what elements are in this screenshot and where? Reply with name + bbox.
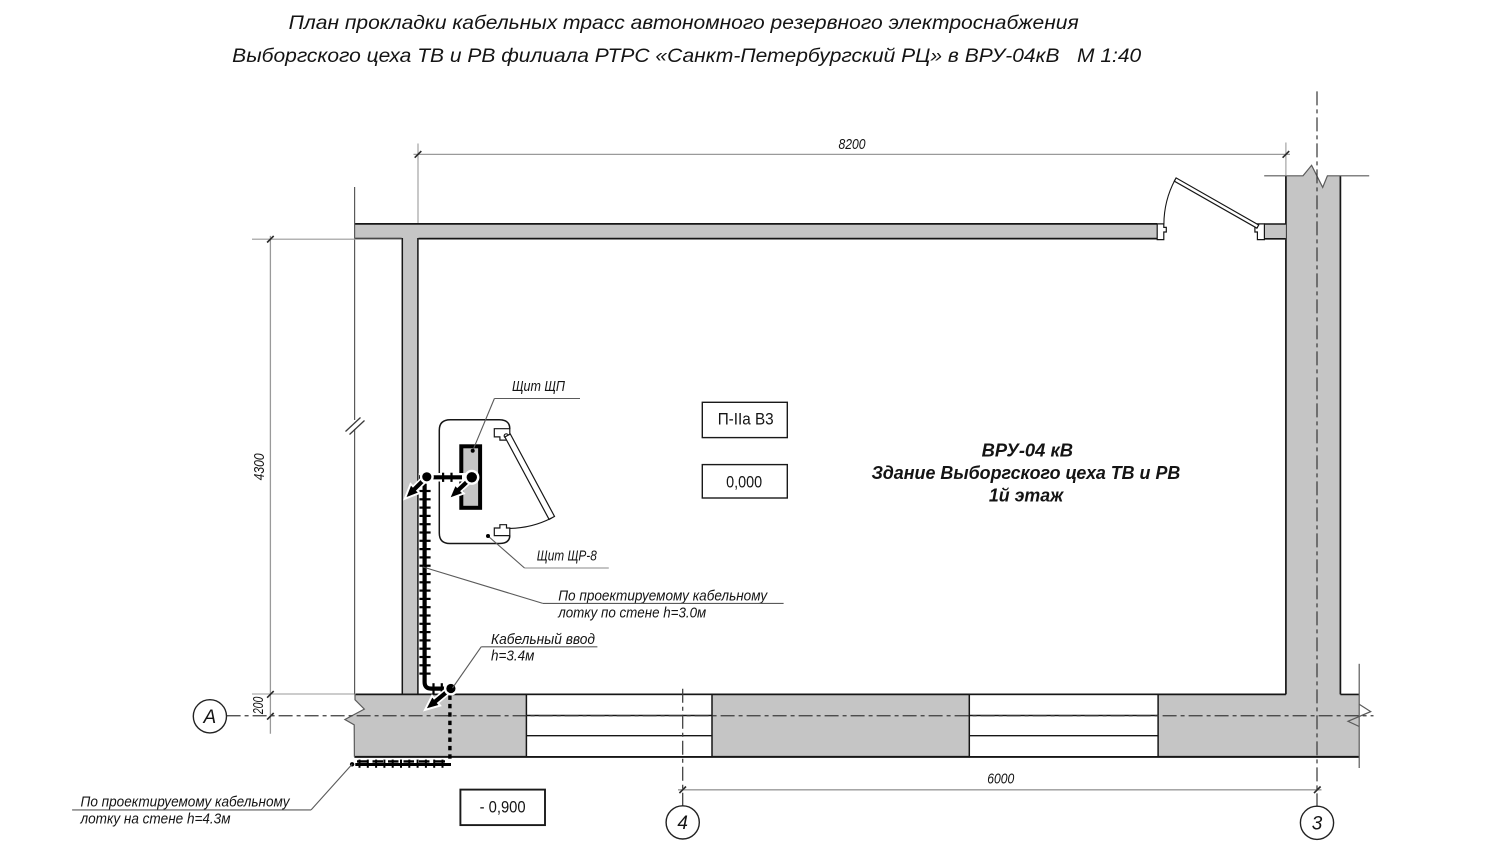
svg-text:3: 3 [1312,814,1323,835]
svg-text:Выборгского цеха ТВ и РВ филиа: Выборгского цеха ТВ и РВ филиала РТРС «С… [232,45,1141,67]
svg-text:П-IIа В3: П-IIа В3 [718,410,774,429]
svg-text:4: 4 [677,813,688,834]
svg-text:1й этаж: 1й этаж [989,484,1065,505]
svg-text:ВРУ-04 кВ: ВРУ-04 кВ [982,439,1073,460]
svg-text:0,000: 0,000 [726,473,762,492]
svg-text:Щит ЩР-8: Щит ЩР-8 [537,548,598,565]
svg-text:4300: 4300 [251,453,268,481]
svg-text:200: 200 [250,696,267,715]
svg-text:- 0,900: - 0,900 [480,798,526,817]
svg-text:По проектируемому кабельному: По проектируемому кабельному [81,794,291,811]
svg-text:6000: 6000 [987,771,1015,788]
svg-text:План прокладки кабельных трасс: План прокладки кабельных трасс автономно… [289,12,1080,34]
svg-text:h=3.4м: h=3.4м [491,648,534,665]
svg-text:лотку на стене h=4.3м: лотку на стене h=4.3м [80,810,231,827]
svg-text:Кабельный ввод: Кабельный ввод [491,631,595,648]
svg-text:Здание Выборгского цеха ТВ и Р: Здание Выборгского цеха ТВ и РВ [872,462,1181,483]
svg-text:А: А [203,707,217,728]
svg-text:По проектируемому кабельному: По проектируемому кабельному [558,588,768,605]
svg-text:Щит ЩП: Щит ЩП [512,378,565,395]
svg-text:лотку по стене h=3.0м: лотку по стене h=3.0м [557,605,706,622]
svg-text:8200: 8200 [839,136,867,153]
